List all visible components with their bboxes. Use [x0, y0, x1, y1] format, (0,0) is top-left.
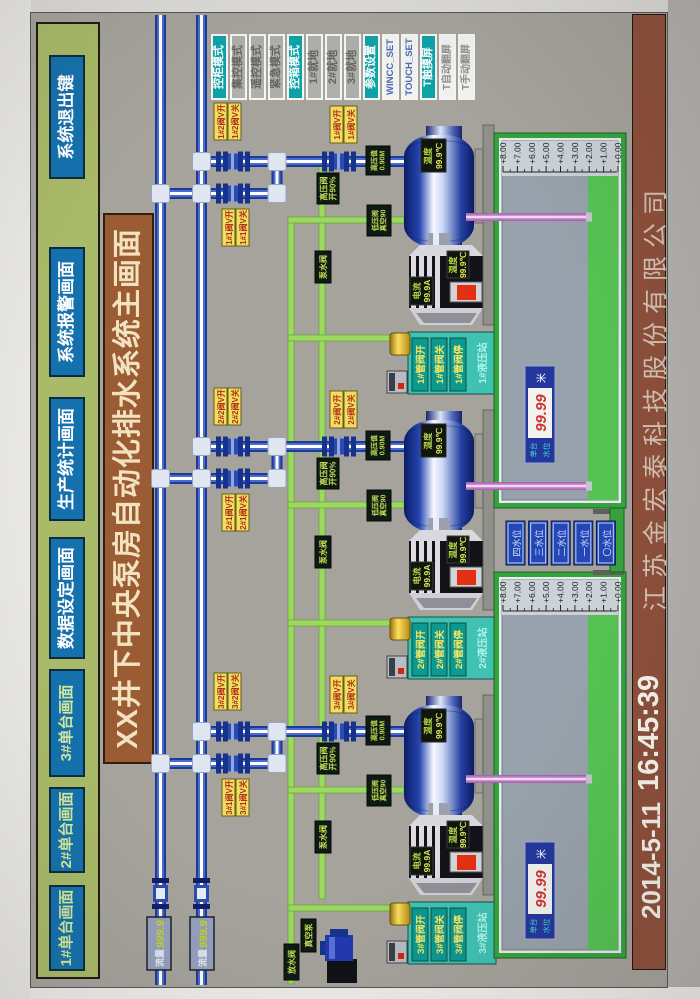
svg-text:+5.00: +5.00 [541, 581, 551, 603]
svg-text:99.9A: 99.9A [422, 280, 432, 303]
svg-text:99.9℃: 99.9℃ [434, 143, 444, 170]
svg-text:高压阀: 高压阀 [318, 462, 328, 486]
svg-text:放水阀: 放水阀 [286, 950, 296, 975]
svg-text:0.90M: 0.90M [379, 436, 386, 456]
svg-text:泵水阀: 泵水阀 [318, 255, 328, 279]
svg-text:3#1阀V开: 3#1阀V开 [224, 780, 234, 815]
svg-text:0.90M: 0.90M [379, 151, 386, 171]
svg-text:水位: 水位 [541, 442, 551, 457]
svg-text:二水位: 二水位 [556, 529, 567, 556]
svg-text:真空泵: 真空泵 [303, 924, 313, 948]
svg-text:温度: 温度 [448, 256, 458, 274]
svg-text:1#管阀开: 1#管阀开 [415, 344, 427, 384]
svg-text:+0.00: +0.00 [613, 142, 623, 164]
svg-text:真空90: 真空90 [378, 210, 387, 232]
svg-text:3#管阀停: 3#管阀停 [453, 914, 465, 954]
svg-text:1#阀V开: 1#阀V开 [332, 109, 342, 139]
svg-text:低压阀: 低压阀 [370, 780, 379, 802]
svg-text:1#2阀V关: 1#2阀V关 [230, 104, 240, 139]
svg-text:2#管阀停: 2#管阀停 [453, 629, 465, 669]
svg-text:+6.00: +6.00 [527, 581, 537, 603]
svg-text:泵水阀: 泵水阀 [318, 540, 328, 564]
svg-text:1#管阀关: 1#管阀关 [434, 344, 446, 384]
svg-text:99.99: 99.99 [533, 870, 550, 908]
svg-text:温度: 温度 [423, 432, 433, 450]
svg-text:2#液压站: 2#液压站 [476, 627, 489, 668]
svg-text:1#管阀停: 1#管阀停 [453, 344, 465, 384]
svg-text:开90%: 开90% [328, 176, 337, 200]
svg-text:温度: 温度 [448, 541, 458, 559]
svg-text:+7.00: +7.00 [512, 142, 522, 164]
svg-text:电流: 电流 [412, 282, 422, 300]
svg-text:+6.00: +6.00 [527, 142, 537, 164]
svg-text:99.9℃: 99.9℃ [458, 252, 468, 279]
svg-text:低压阀: 低压阀 [370, 495, 379, 517]
svg-text:99.9℃: 99.9℃ [434, 713, 444, 740]
svg-text:99.9A: 99.9A [422, 850, 432, 873]
svg-text:单台: 单台 [528, 443, 538, 458]
svg-text:+3.00: +3.00 [570, 142, 580, 164]
svg-text:+7.00: +7.00 [512, 581, 522, 603]
svg-text:2#管阀关: 2#管阀关 [434, 629, 446, 669]
svg-text:3#2阀V关: 3#2阀V关 [230, 674, 240, 709]
svg-text:1#液压站: 1#液压站 [476, 342, 489, 383]
svg-text:2#1阀V开: 2#1阀V开 [224, 495, 234, 530]
svg-text:温度: 温度 [423, 717, 433, 735]
svg-text:流量: 流量 [154, 949, 165, 967]
svg-text:+1.00: +1.00 [599, 142, 609, 164]
svg-text:低压阀: 低压阀 [370, 210, 379, 232]
svg-text:真空90: 真空90 [378, 780, 387, 802]
svg-text:开90%: 开90% [328, 461, 337, 485]
svg-text:一水位: 一水位 [579, 529, 590, 556]
svg-text:+2.00: +2.00 [584, 142, 594, 164]
svg-text:99.9A: 99.9A [422, 565, 432, 588]
svg-text:2#管阀开: 2#管阀开 [415, 629, 427, 669]
svg-text:0.90M: 0.90M [379, 721, 386, 741]
svg-text:2#2阀V开: 2#2阀V开 [216, 389, 226, 424]
svg-text:+5.00: +5.00 [541, 142, 551, 164]
svg-text:米: 米 [535, 373, 548, 383]
svg-text:+8.00: +8.00 [498, 142, 508, 164]
svg-text:1#1阀V关: 1#1阀V关 [238, 210, 248, 245]
svg-text:开90%: 开90% [328, 746, 337, 770]
svg-text:温度: 温度 [423, 147, 433, 165]
svg-text:3#管阀关: 3#管阀关 [434, 914, 446, 954]
svg-text:99.99: 99.99 [533, 394, 550, 432]
svg-text:〇水位: 〇水位 [601, 529, 612, 556]
svg-text:米: 米 [535, 849, 548, 859]
svg-text:+1.00: +1.00 [599, 581, 609, 603]
svg-text:泵水阀: 泵水阀 [318, 825, 328, 849]
svg-text:3#阀V关: 3#阀V关 [346, 679, 356, 709]
svg-text:+8.00: +8.00 [498, 581, 508, 603]
svg-text:2#1阀V关: 2#1阀V关 [238, 495, 248, 530]
svg-text:高压阀: 高压阀 [318, 177, 328, 201]
svg-text:3#管阀开: 3#管阀开 [415, 914, 427, 954]
svg-text:2#阀V开: 2#阀V开 [332, 394, 342, 424]
svg-text:流量: 流量 [197, 949, 208, 967]
svg-text:2#阀V关: 2#阀V关 [346, 394, 356, 424]
svg-text:单台: 单台 [528, 919, 538, 934]
svg-text:+4.00: +4.00 [556, 581, 566, 603]
svg-text:3#1阀V关: 3#1阀V关 [238, 780, 248, 815]
svg-text:1#1阀V开: 1#1阀V开 [224, 210, 234, 245]
svg-text:高压值: 高压值 [369, 435, 378, 456]
svg-text:3#液压站: 3#液压站 [476, 912, 489, 953]
svg-text:高压值: 高压值 [369, 720, 378, 741]
svg-text:四水位: 四水位 [511, 529, 522, 556]
svg-text:2#2阀V关: 2#2阀V关 [230, 389, 240, 424]
svg-text:99.9℃: 99.9℃ [458, 822, 468, 849]
svg-text:+2.00: +2.00 [584, 581, 594, 603]
svg-text:3#阀V开: 3#阀V开 [332, 679, 342, 709]
svg-text:+3.00: +3.00 [570, 581, 580, 603]
svg-text:水位: 水位 [541, 918, 551, 933]
svg-text:电流: 电流 [412, 567, 422, 585]
svg-text:999.9: 999.9 [198, 920, 210, 948]
svg-text:三水位: 三水位 [534, 529, 545, 556]
svg-text:99.9℃: 99.9℃ [458, 537, 468, 564]
svg-text:高压值: 高压值 [369, 150, 378, 171]
svg-text:999.9: 999.9 [155, 920, 167, 948]
svg-text:+0.00: +0.00 [613, 581, 623, 603]
svg-text:+4.00: +4.00 [556, 142, 566, 164]
svg-text:1#2阀V开: 1#2阀V开 [216, 104, 226, 139]
svg-text:真空90: 真空90 [378, 495, 387, 517]
svg-text:99.9℃: 99.9℃ [434, 428, 444, 455]
svg-text:电流: 电流 [412, 852, 422, 870]
svg-text:温度: 温度 [448, 826, 458, 844]
svg-text:高压阀: 高压阀 [318, 747, 328, 771]
svg-text:3#2阀V开: 3#2阀V开 [216, 674, 226, 709]
svg-text:1#阀V关: 1#阀V关 [346, 109, 356, 139]
